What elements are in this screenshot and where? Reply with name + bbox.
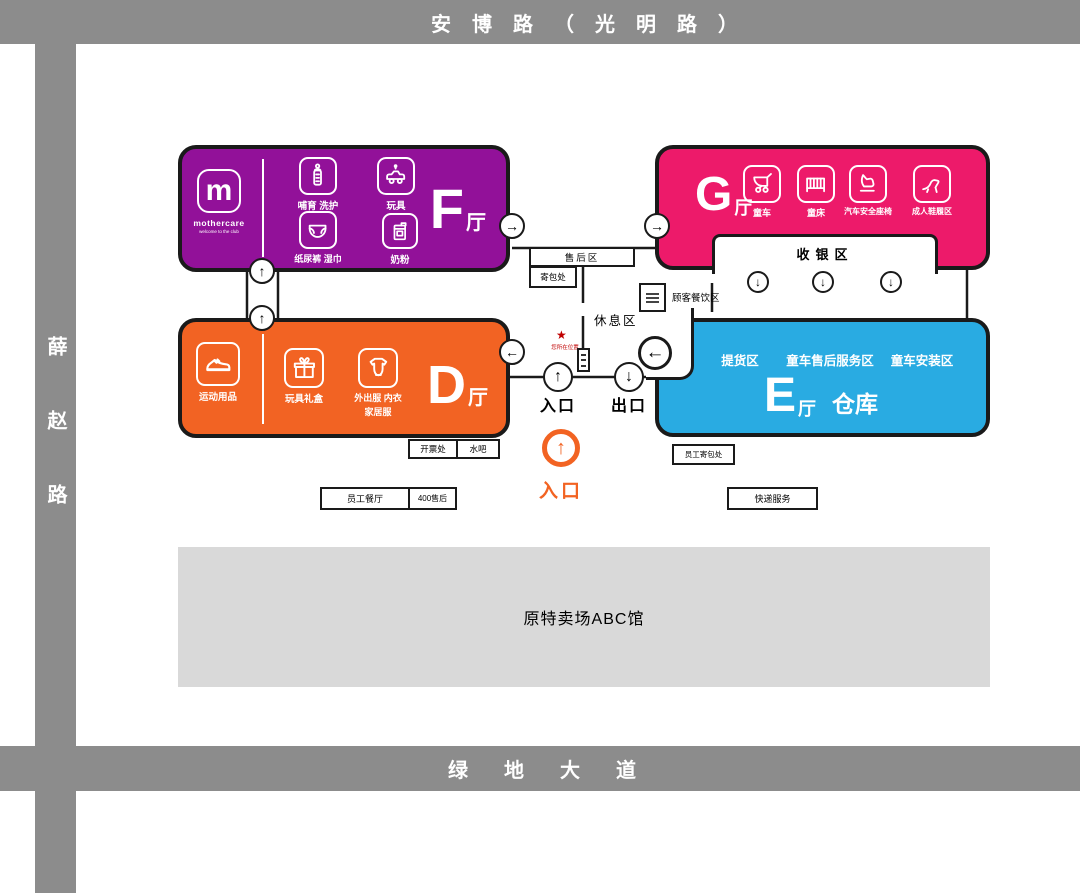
zone-stroller-service: 童车售后服务区 xyxy=(770,350,890,369)
gift-box-icon xyxy=(284,348,324,388)
arrow-d-to-f-top-icon: ↑ xyxy=(249,258,275,284)
staff-canteen-box: 员工餐厅 xyxy=(320,487,410,510)
entrance-label: 入口 xyxy=(538,392,578,416)
former-outlet-block: 原特卖场ABC馆 xyxy=(178,547,990,687)
category-toys: 玩具 xyxy=(354,157,438,212)
zone-pickup: 提货区 xyxy=(705,350,775,369)
arrow-into-g-icon: → xyxy=(644,213,670,239)
road-top-label: 安博路（光明路） xyxy=(431,8,759,37)
exit-arrow-icon: ↓ xyxy=(614,362,644,392)
category-label: 哺育 洗护 xyxy=(276,198,360,212)
gate-icon xyxy=(577,348,590,372)
category-feeding: 哺育 洗护 xyxy=(276,157,360,212)
toy-car-icon xyxy=(377,157,415,195)
main-entrance-label: 入口 xyxy=(529,476,593,503)
category-label: 奶粉 xyxy=(358,252,442,266)
cashier-arrow-1-icon: ↓ xyxy=(747,271,769,293)
hotline-box: 400售后 xyxy=(408,487,457,510)
former-outlet-label: 原特卖场ABC馆 xyxy=(524,605,645,629)
baby-clothes-icon xyxy=(358,348,398,388)
category-label: 玩具 xyxy=(354,198,438,212)
high-heel-icon xyxy=(913,165,951,203)
road-left-label: 薛赵路 xyxy=(41,336,70,558)
arrow-e-exit-icon: ← xyxy=(638,336,672,370)
category-clothing: 外出服 内衣 家居服 xyxy=(336,348,420,418)
bag-check-box: 寄包处 xyxy=(529,266,577,288)
hall-d-title: D 厅 xyxy=(427,358,488,412)
baby-bottle-icon xyxy=(299,157,337,195)
dining-area-label: 顾客餐饮区 xyxy=(672,290,720,304)
category-label: 运动用品 xyxy=(176,389,260,403)
category-label: 纸尿裤 湿巾 xyxy=(276,252,360,265)
sneaker-icon xyxy=(196,342,240,386)
cashier-arrow-3-icon: ↓ xyxy=(880,271,902,293)
arrow-into-d-icon: ← xyxy=(499,339,525,365)
hall-e: 提货区 童车售后服务区 童车安装区 E 厅 仓库 xyxy=(655,318,990,437)
zone-stroller-assembly: 童车安装区 xyxy=(882,350,962,369)
category-diapers: 纸尿裤 湿巾 xyxy=(276,211,360,265)
stroller-icon xyxy=(743,165,781,203)
road-top: 安博路（光明路） xyxy=(0,0,1080,44)
brand-tagline: welcome to the club xyxy=(186,229,252,234)
category-adult-shoes: 成人鞋履区 xyxy=(894,165,970,217)
category-gift-sets: 玩具礼盒 xyxy=(262,348,346,405)
milk-powder-icon xyxy=(382,213,418,249)
entrance-arrow-icon: ↑ xyxy=(543,362,573,392)
mothercare-logo: m mothercare welcome to the club xyxy=(186,169,252,234)
category-label: 外出服 内衣 xyxy=(336,391,420,404)
main-entrance-arrow-icon: ↑ xyxy=(542,429,580,467)
cashier-arrow-2-icon: ↓ xyxy=(812,271,834,293)
you-are-here-star-icon: ★ xyxy=(556,329,567,341)
mothercare-m-icon: m xyxy=(197,169,241,213)
exit-label: 出口 xyxy=(609,392,649,416)
category-sports: 运动用品 xyxy=(176,342,260,403)
car-seat-icon xyxy=(849,165,887,203)
arrow-f-to-g-icon: → xyxy=(499,213,525,239)
invoice-box: 开票处 xyxy=(408,439,458,459)
staff-bag-box: 员工寄包处 xyxy=(672,444,735,465)
dining-icon xyxy=(639,283,666,312)
cashier-label: 收银区 xyxy=(796,247,853,262)
category-label: 玩具礼盒 xyxy=(262,391,346,405)
category-label: 成人鞋履区 xyxy=(894,206,970,217)
after-sales-box: 售后区 xyxy=(529,247,635,267)
road-bottom-label: 绿地大道 xyxy=(448,754,672,783)
arrow-d-to-f-bottom-icon: ↑ xyxy=(249,305,275,331)
hall-d: 运动用品 玩具礼盒 外出服 内衣 家居服 D 厅 xyxy=(178,318,510,438)
category-label: 家居服 xyxy=(336,405,420,418)
water-bar-box: 水吧 xyxy=(456,439,500,459)
road-bottom: 绿地大道 xyxy=(0,746,1080,791)
courier-box: 快递服务 xyxy=(727,487,818,510)
brand-name: mothercare xyxy=(186,218,252,228)
hall-f: m mothercare welcome to the club 哺育 洗护 xyxy=(178,145,510,272)
rest-area-label: 休息区 xyxy=(594,310,638,329)
divider xyxy=(262,159,264,257)
cashier-area: 收银区 xyxy=(712,234,938,274)
store-floor-plan: 安博路（光明路） 薛赵路 绿地大道 原特卖场ABC馆 m mothercare … xyxy=(0,0,1080,893)
hall-e-title: E 厅 仓库 xyxy=(764,372,878,420)
hall-f-title: F 厅 xyxy=(430,181,486,237)
diaper-icon xyxy=(299,211,337,249)
